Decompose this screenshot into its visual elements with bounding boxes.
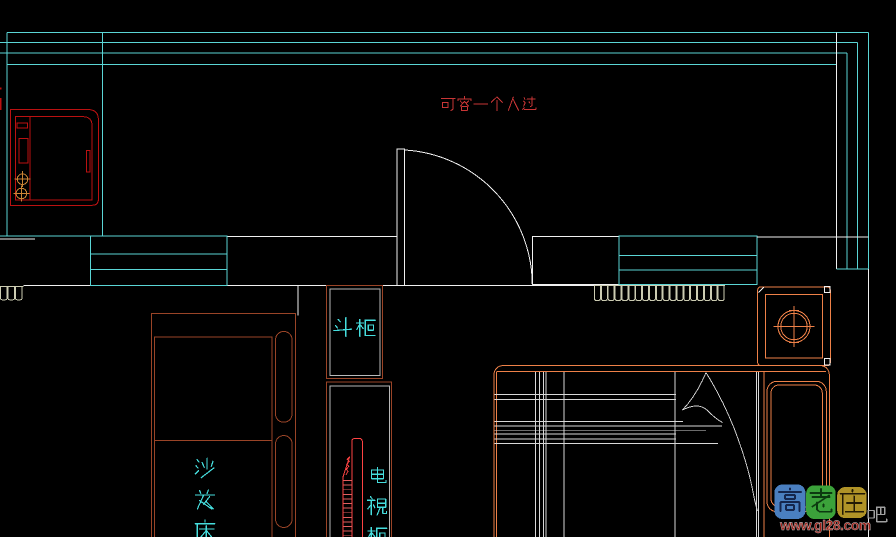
svg-text:www.gl28.com: www.gl28.com	[779, 517, 871, 533]
